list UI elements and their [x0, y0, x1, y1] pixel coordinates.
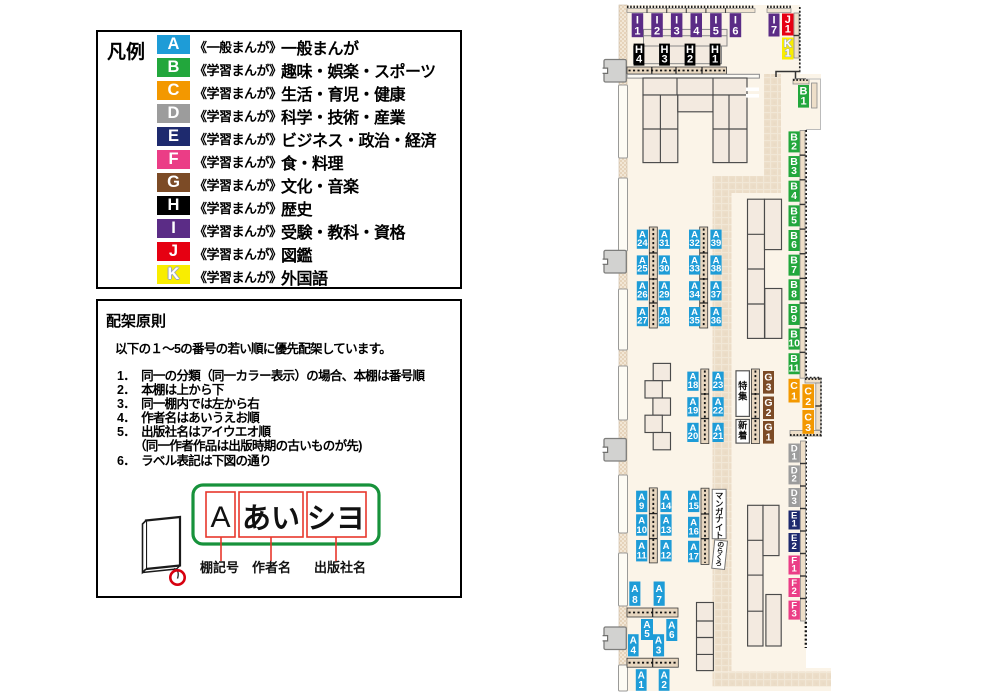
svg-text:2: 2: [687, 54, 693, 66]
svg-text:1: 1: [792, 519, 798, 530]
svg-text:棚記号: 棚記号: [200, 560, 239, 575]
svg-text:3: 3: [791, 165, 797, 177]
svg-text:31: 31: [659, 238, 670, 249]
svg-text:19: 19: [688, 406, 699, 417]
svg-text:4: 4: [693, 25, 700, 37]
svg-text:27: 27: [637, 315, 648, 326]
svg-text:28: 28: [659, 315, 670, 326]
svg-text:18: 18: [688, 380, 699, 391]
svg-text:5: 5: [713, 25, 719, 37]
svg-text:1: 1: [792, 452, 798, 463]
svg-text:9: 9: [791, 313, 797, 325]
svg-text:23: 23: [713, 380, 724, 391]
svg-text:35: 35: [689, 315, 700, 326]
svg-text:26: 26: [637, 290, 648, 301]
svg-text:シヨ: シヨ: [307, 503, 365, 535]
svg-text:3: 3: [656, 646, 662, 657]
svg-text:17: 17: [688, 551, 699, 562]
svg-text:2: 2: [661, 680, 667, 691]
svg-text:36: 36: [711, 315, 722, 326]
svg-text:14: 14: [661, 501, 672, 512]
svg-text:25: 25: [637, 264, 648, 275]
svg-text:A: A: [656, 584, 663, 595]
svg-text:3: 3: [674, 25, 680, 37]
svg-text:8: 8: [632, 595, 638, 606]
svg-text:3: 3: [792, 496, 797, 507]
svg-text:2: 2: [766, 407, 772, 419]
svg-text:2: 2: [792, 541, 797, 552]
svg-text:5: 5: [791, 214, 797, 226]
svg-text:1: 1: [634, 25, 640, 37]
svg-text:1: 1: [638, 680, 644, 691]
svg-text:33: 33: [689, 264, 700, 275]
svg-text:10: 10: [788, 338, 800, 350]
svg-text:2: 2: [792, 586, 797, 597]
svg-text:7: 7: [771, 25, 777, 37]
svg-text:4: 4: [636, 54, 643, 66]
svg-text:39: 39: [711, 238, 722, 249]
svg-text:A: A: [210, 501, 230, 534]
svg-text:21: 21: [713, 431, 724, 442]
svg-text:3: 3: [661, 54, 667, 66]
svg-text:1: 1: [792, 564, 798, 575]
svg-text:13: 13: [661, 525, 672, 536]
svg-text:11: 11: [637, 551, 648, 562]
svg-text:2: 2: [654, 25, 660, 37]
svg-text:11: 11: [789, 362, 800, 374]
svg-text:2: 2: [805, 396, 811, 408]
svg-text:6: 6: [669, 630, 675, 641]
svg-text:1: 1: [766, 432, 772, 444]
svg-text:2: 2: [791, 141, 797, 153]
svg-text:3: 3: [766, 382, 772, 394]
svg-text:30: 30: [659, 264, 670, 275]
svg-text:1: 1: [712, 54, 718, 66]
svg-text:新着: 新着: [737, 420, 747, 441]
svg-text:6: 6: [732, 25, 738, 37]
svg-text:1: 1: [800, 96, 806, 108]
svg-text:20: 20: [688, 431, 699, 442]
svg-text:8: 8: [791, 288, 797, 300]
svg-text:1: 1: [785, 24, 791, 36]
svg-text:6: 6: [791, 239, 797, 251]
svg-text:出版社名: 出版社名: [314, 560, 366, 575]
svg-text:37: 37: [711, 290, 722, 301]
svg-text:3: 3: [792, 609, 797, 620]
svg-text:34: 34: [689, 290, 700, 301]
svg-text:10: 10: [636, 525, 647, 536]
svg-text:16: 16: [688, 527, 699, 538]
svg-text:15: 15: [688, 501, 699, 512]
svg-text:4: 4: [631, 646, 637, 657]
svg-text:7: 7: [656, 595, 662, 606]
svg-text:特集: 特集: [737, 380, 748, 402]
svg-text:22: 22: [713, 406, 724, 417]
svg-text:29: 29: [659, 290, 670, 301]
svg-text:A: A: [631, 584, 638, 595]
svg-text:1: 1: [791, 391, 797, 403]
svg-text:作者名: 作者名: [252, 560, 291, 575]
svg-text:3: 3: [805, 422, 811, 434]
svg-text:4: 4: [791, 190, 797, 202]
svg-text:1: 1: [785, 48, 791, 60]
svg-text:24: 24: [637, 238, 648, 249]
svg-text:38: 38: [711, 264, 722, 275]
svg-text:あい: あい: [242, 503, 300, 535]
svg-text:7: 7: [791, 264, 797, 276]
svg-text:32: 32: [689, 238, 700, 249]
svg-text:9: 9: [639, 501, 644, 512]
svg-text:5: 5: [644, 629, 650, 640]
svg-text:2: 2: [792, 474, 797, 485]
svg-text:12: 12: [661, 551, 672, 562]
svg-text:マンガナイト: マンガナイト: [715, 492, 723, 541]
